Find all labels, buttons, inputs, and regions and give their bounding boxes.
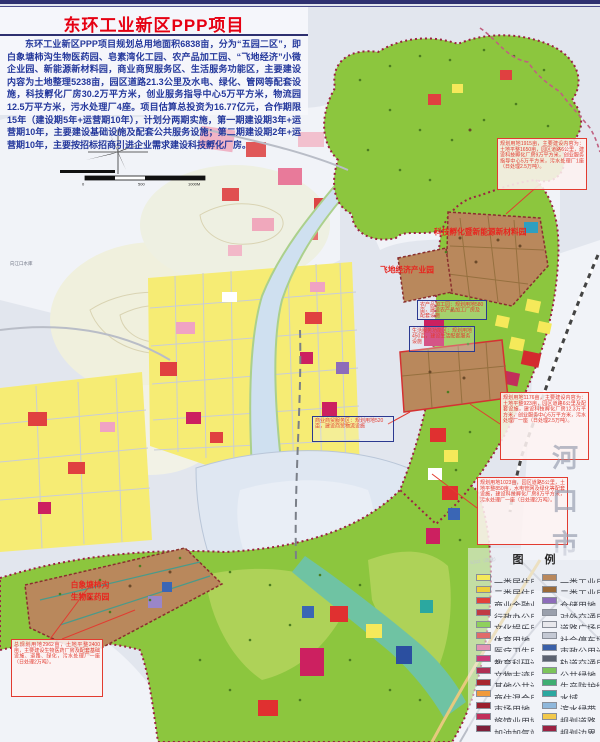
legend-swatch [542,713,557,720]
legend-item: 对外交通用地 [534,607,600,619]
legend-swatch [542,690,557,697]
legend-item: 二类工业用地 [534,584,600,596]
legend-item: 市政公用设施用地 [534,642,600,654]
legend-label: 旅馆业用地 [494,712,534,722]
legend-label: 教育科研设计用地 [494,654,534,664]
legend-label: 其他公共设施用地 [494,677,534,687]
legend-label: 市政公用设施用地 [560,642,600,652]
legend-item: 旅馆业用地 [468,711,534,723]
legend-item: 生产防护绿地 [534,676,600,688]
legend-item: 道路广场用地 [534,618,600,630]
legend-item: 行政办公用地 [468,607,534,619]
label-ne-park: 科技孵化暨新能源新材料园 [434,228,534,239]
legend-label: 文化娱乐用地 [494,619,534,629]
legend-label: 一类居住用地 [494,573,534,583]
legend-label: 对外交通用地 [560,608,600,618]
legend-label: 商业金融业用地 [494,596,534,606]
legend-swatch [542,725,557,732]
legend-swatch [476,644,491,651]
legend-item: 规划道路 [534,711,600,723]
legend-swatch [476,609,491,616]
legend-item: 医疗卫生用地 [468,642,534,654]
legend-item: 滨水绿带 [534,700,600,712]
legend-label: 社会停车场库用地 [560,631,600,641]
legend-swatch [476,621,491,628]
legend-label: 仓储用地 [560,596,600,606]
legend-swatch [542,586,557,593]
legend-item: 市场用地 [468,700,534,712]
scalebar-end: 1000M [188,182,222,192]
legend-item: 教育科研设计用地 [468,653,534,665]
legend-label: 生产防护绿地 [560,677,600,687]
legend-swatch [476,702,491,709]
legend-item: 体育用地 [468,630,534,642]
callout-agri-park: 农产品加工园：规划用地580亩，建设农产品加工厂房及配套设施 [417,300,487,320]
legend-label: 二类居住用地 [494,584,534,594]
legend-swatch [542,679,557,686]
callout-commerce: 商业商贸服务区：规划用地520亩，建设商贸物流设施 [312,416,394,442]
legend-item: 商住混合用地 [468,688,534,700]
planning-map-page: 东环工业新区PPP项目 东环工业新区PPP项目规划总用地面积6838亩，分为“五… [0,0,600,742]
legend: 图 例 一类居住用地 二类居住用地 商业金融业用 [468,548,600,742]
annotation-southwest: 总规划用地2962亩，土地平整2400亩，主要建设生物医药厂房及配套基础设施、道… [11,639,103,697]
legend-column-2: 一类工业用地 二类工业用地 仓储用地 对外交通用地 [534,572,600,734]
label-bio-park: 白象塘柿沟 生物医药园 [58,581,122,605]
legend-swatch [542,621,557,628]
legend-label: 体育用地 [494,631,534,641]
scalebar-zero: 0 [82,182,102,192]
legend-swatch [542,574,557,581]
legend-label: 文物古迹用地 [494,666,534,676]
legend-label: 医疗卫生用地 [494,642,534,652]
title-underline [0,34,308,36]
legend-swatch [542,597,557,604]
legend-label: 市场用地 [494,700,534,710]
legend-label: 道路广场用地 [560,619,600,629]
top-border-rule [0,0,600,4]
legend-label: 规划边界 [560,724,600,734]
legend-label: 商住混合用地 [494,689,534,699]
legend-item: 仓储用地 [534,595,600,607]
legend-item: 文化娱乐用地 [468,618,534,630]
legend-label: 规划道路 [560,712,600,722]
legend-swatch [542,667,557,674]
legend-swatch [476,667,491,674]
legend-item: 二类居住用地 [468,584,534,596]
label-feidi-park: 飞地经济产业园 [380,266,440,276]
callout-life-service: 生活服务功能区：规划用地450亩，建设生活配套服务设施 [409,326,475,352]
legend-item: 加油加气站用地 [468,723,534,735]
legend-item: 商业金融业用地 [468,595,534,607]
legend-item: 公共绿地 [534,665,600,677]
legend-item: 轨道交通用地 [534,653,600,665]
page-title: 东环工业新区PPP项目 [0,11,308,36]
legend-item: 一类居住用地 [468,572,534,584]
legend-label: 水域 [560,689,600,699]
legend-label: 加油加气站用地 [494,724,534,734]
legend-swatch [542,609,557,616]
legend-label: 二类工业用地 [560,584,600,594]
legend-swatch [542,644,557,651]
legend-label: 公共绿地 [560,666,600,676]
legend-swatch [476,713,491,720]
legend-swatch [476,655,491,662]
legend-item: 文物古迹用地 [468,665,534,677]
legend-item: 社会停车场库用地 [534,630,600,642]
legend-swatch [476,690,491,697]
legend-column-1: 一类居住用地 二类居住用地 商业金融业用地 行政办公用地 [468,572,534,734]
legend-item: 其他公共设施用地 [468,676,534,688]
city-label-hekou: 河 口 市 [552,438,578,561]
annotation-ne: 规划用地1915亩，主要建设内容为：土地平整1650亩，园区道路6公里，建设科技… [497,138,587,190]
scalebar-mid: 500 [138,182,162,192]
legend-title: 图 例 [468,551,600,567]
legend-label: 行政办公用地 [494,608,534,618]
project-intro-text: 东环工业新区PPP项目规划总用地面积6838亩，分为“五园二区”，即白象塘柿沟生… [7,38,301,151]
legend-item: 一类工业用地 [534,572,600,584]
legend-swatch [476,574,491,581]
legend-swatch [542,702,557,709]
legend-item: 规划边界 [534,723,600,735]
legend-label: 一类工业用地 [560,573,600,583]
legend-label: 滨水绿带 [560,700,600,710]
legend-swatch [476,597,491,604]
legend-swatch [476,725,491,732]
legend-swatch [476,679,491,686]
legend-item: 水域 [534,688,600,700]
legend-swatch [542,632,557,639]
legend-label: 轨道交通用地 [560,654,600,664]
reservoir-label: 向江口水库 [10,260,70,272]
legend-swatch [476,632,491,639]
legend-swatch [542,655,557,662]
header: 东环工业新区PPP项目 东环工业新区PPP项目规划总用地面积6838亩，分为“五… [0,7,308,115]
legend-swatch [476,586,491,593]
